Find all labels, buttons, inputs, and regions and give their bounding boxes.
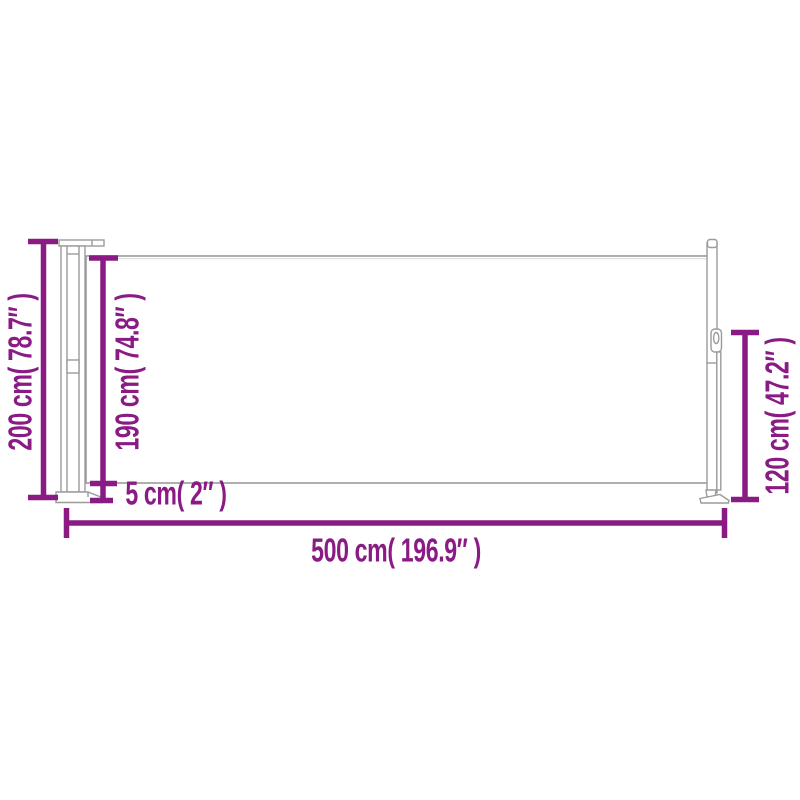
dimension-label-total-length: 500 cm( 196.9″ ) — [311, 534, 481, 567]
dimension-label-end-height: 120 cm( 47.2″ ) — [761, 337, 794, 494]
dimension-label-total-height: 200 cm( 78.7″ ) — [4, 293, 37, 450]
awning-structure — [56, 240, 729, 504]
dimension-label-bottom-gap: 5 cm( 2″ ) — [125, 477, 226, 510]
diagram-canvas: 200 cm( 78.7″ ) 190 cm( 74.8″ ) 5 cm( 2″… — [0, 0, 800, 800]
dimension-label-fabric-height: 190 cm( 74.8″ ) — [111, 293, 144, 450]
fabric-panel — [86, 256, 708, 483]
dim-line-end-height — [731, 333, 759, 500]
